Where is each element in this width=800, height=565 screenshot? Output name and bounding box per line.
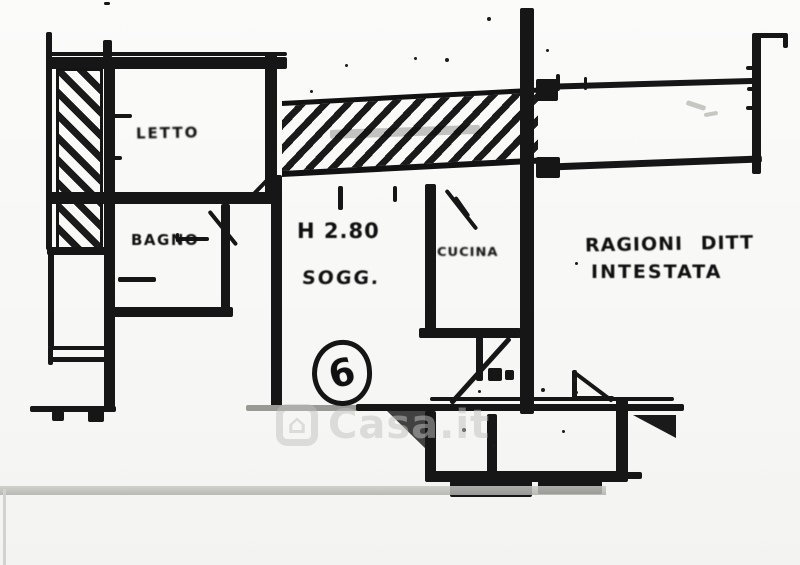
pencil-smudge-1 [686,100,707,111]
tick-letto-wall-2 [106,156,122,160]
wall-left-lower [48,253,54,348]
scan-band-bottom [0,486,606,495]
handwritten-note-line1: RAGIONI DITT [585,234,754,256]
speck [310,90,313,93]
speck [546,49,549,52]
unit-number: 6 [325,352,359,394]
hatched-wall-left [56,68,103,250]
line-right-bottom [538,155,762,171]
window-left-line1 [50,346,112,350]
scan-edge-left [3,489,6,565]
room-label-letto: LETTO [136,125,200,141]
speck [445,58,449,62]
rip-smudge-1 [488,368,502,381]
cap-right-top-v [783,33,788,48]
handwritten-note-line2: INTESTATA [591,263,723,282]
speck [478,390,481,393]
speck [575,262,578,265]
speck [562,430,565,433]
pencil-smudge-2 [704,111,718,117]
speck [104,2,110,5]
tick-right-top-2 [584,77,587,90]
cap-right-top-h [752,33,787,38]
balcony-wall-right [616,399,628,481]
tick-right-wall-2 [747,87,754,91]
house-icon: ⌂ [276,404,318,446]
speck [487,17,491,21]
window-left-line2 [50,357,112,362]
tick-letto-wall-1 [112,114,132,118]
joint-right-top [536,79,558,101]
baseline-left-foot-2 [88,409,104,422]
tick-sogg-top-1 [338,186,343,210]
wall-sogg-left [271,175,282,411]
wall-bagno-bottom [107,307,233,317]
rip-smudge-2 [505,370,514,380]
wall-top-thin [49,52,287,56]
wall-central-vertical [520,8,534,414]
room-label-bagno: BAGNO [131,233,199,248]
room-label-cucina: CUCINA [437,246,498,258]
baseline-left-foot-1 [52,411,64,421]
tick-right-wall-3 [746,106,754,110]
speck [414,57,417,60]
line-right-top [538,78,758,90]
wall-cucina-bottom [419,328,521,338]
balcony-tip-right [633,415,676,438]
unit-number-circle: 6 [310,338,374,408]
wall-letto-bagno [49,192,278,204]
speck [345,64,348,67]
wall-cucina-left [425,184,436,337]
speck [575,391,578,394]
ceiling-height-note: H 2.80 [297,221,380,242]
tick-right-top-1 [556,74,560,91]
window-left-jamb [48,346,53,365]
watermark: ⌂ Casa.it [276,402,490,448]
balcony-bottom-foot [626,472,642,479]
floor-plan-scan: LETTO BAGNO H 2.80 SOGG. CUCINA 6 RAGION… [0,0,800,565]
tick-right-wall-1 [746,66,754,70]
tick-bagno-lower [118,277,156,282]
wall-bagno-right [221,204,230,316]
speck [573,378,577,382]
balcony-top-line [430,397,674,401]
joint-right-bottom [536,157,560,178]
watermark-text: Casa.it [328,402,490,448]
speck [492,444,495,447]
speck [541,388,545,392]
wall-right-outer [752,34,761,174]
tick-sogg-top-2 [393,186,397,202]
room-label-soggiorno: SOGG. [301,269,381,288]
